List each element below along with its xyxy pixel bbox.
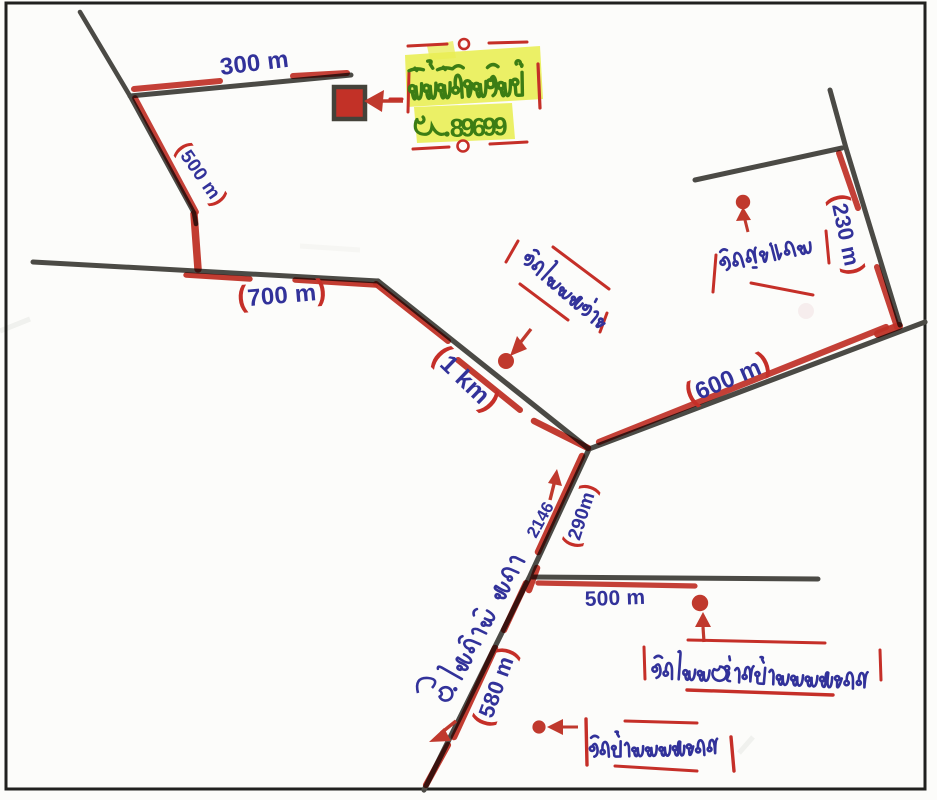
svg-text:89699: 89699 <box>449 111 508 143</box>
svg-text:500 m: 500 m <box>584 586 645 611</box>
